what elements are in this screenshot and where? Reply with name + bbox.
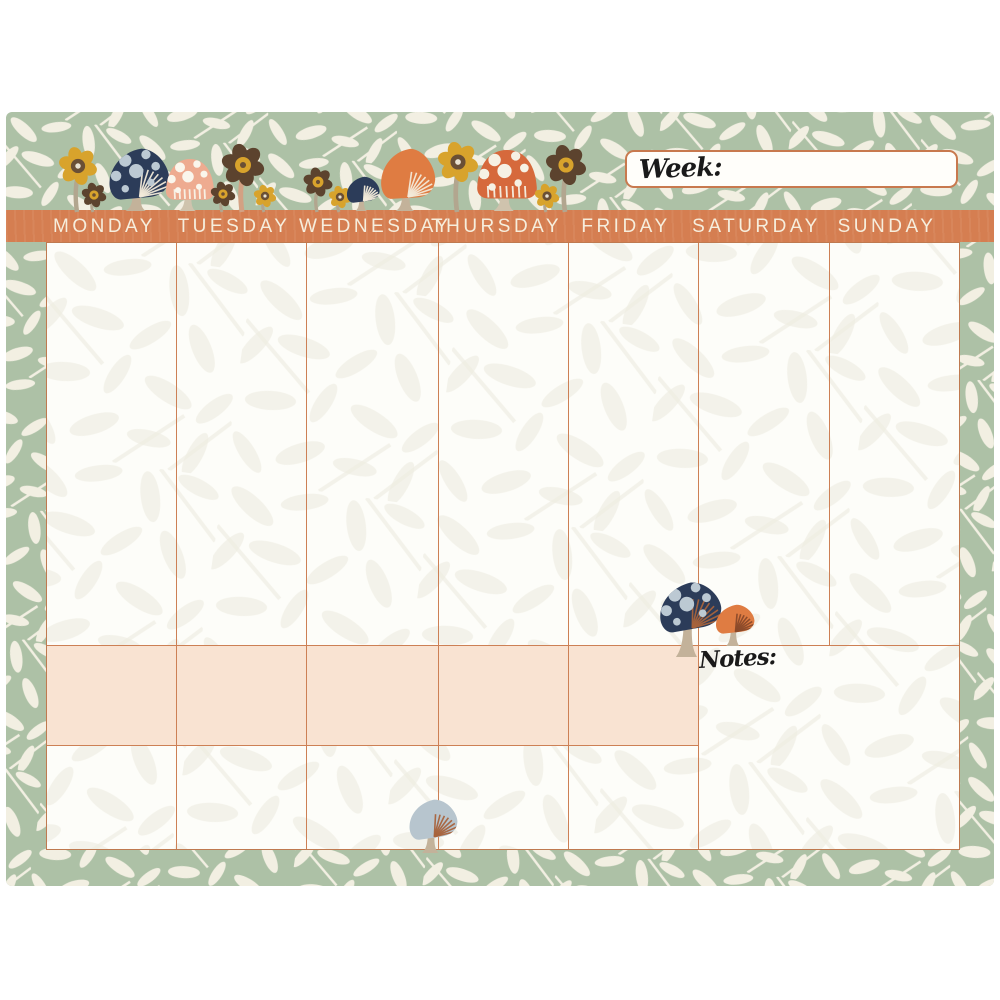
day-cell-wednesday[interactable]: [306, 243, 438, 645]
bottom-cell-friday[interactable]: [568, 745, 698, 849]
weekly-planner-pad: Week: MONDAY TUESDAY WEDNESDAY THURSDAY …: [6, 112, 994, 886]
bottom-cell-monday[interactable]: [47, 745, 176, 849]
grid-line: [568, 243, 569, 849]
weekday-label-sunday: SUNDAY: [822, 210, 952, 242]
day-cell-tuesday[interactable]: [176, 243, 306, 645]
weekday-label-friday: FRIDAY: [561, 210, 691, 242]
grid-line: [306, 243, 307, 849]
planner-grid: Notes:: [46, 242, 960, 850]
notes-cell[interactable]: [698, 645, 959, 849]
day-cell-saturday[interactable]: [698, 243, 829, 645]
day-cell-sunday[interactable]: [829, 243, 959, 645]
day-cell-friday[interactable]: [568, 243, 698, 645]
grid-line: [47, 745, 699, 746]
weekday-label-monday: MONDAY: [40, 210, 169, 242]
highlight-strip: [47, 645, 698, 745]
grid-line: [438, 243, 439, 849]
weekday-label-wednesday: WEDNESDAY: [299, 210, 431, 242]
day-cell-monday[interactable]: [47, 243, 176, 645]
grid-line: [829, 243, 830, 645]
bottom-cell-wednesday[interactable]: [306, 745, 438, 849]
notes-label: Notes:: [698, 643, 776, 674]
day-cell-thursday[interactable]: [438, 243, 568, 645]
week-field[interactable]: Week:: [625, 150, 958, 188]
week-label: Week:: [627, 152, 723, 185]
bottom-cell-thursday[interactable]: [438, 745, 568, 849]
weekday-header-bar: MONDAY TUESDAY WEDNESDAY THURSDAY FRIDAY…: [6, 210, 994, 242]
weekday-label-saturday: SATURDAY: [691, 210, 822, 242]
weekday-label-thursday: THURSDAY: [431, 210, 561, 242]
weekday-label-tuesday: TUESDAY: [169, 210, 299, 242]
grid-line: [176, 243, 177, 849]
bottom-cell-tuesday[interactable]: [176, 745, 306, 849]
grid-line: [698, 243, 699, 849]
grid-line: [47, 645, 959, 646]
